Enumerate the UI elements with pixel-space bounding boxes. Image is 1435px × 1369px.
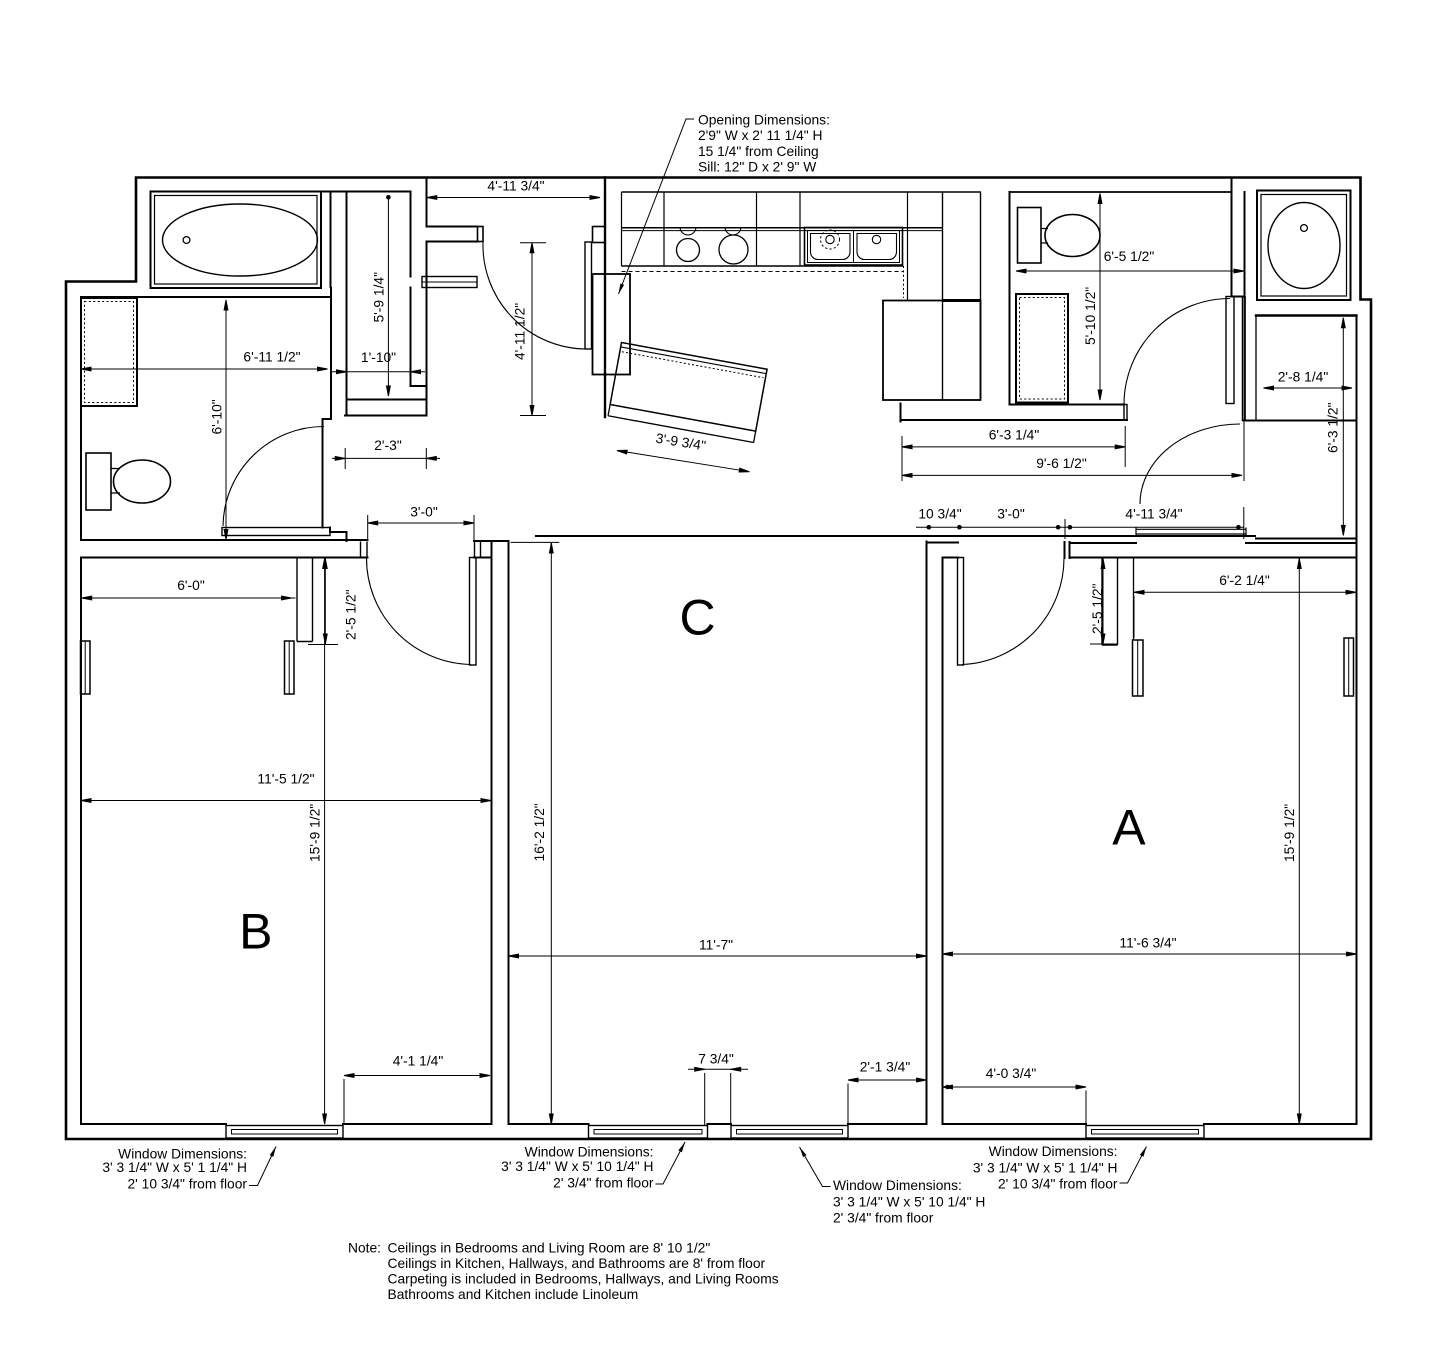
svg-text:Opening Dimensions:: Opening Dimensions:: [698, 113, 830, 128]
svg-text:Window Dimensions:: Window Dimensions:: [833, 1178, 962, 1193]
svg-text:2' 3/4" from floor: 2' 3/4" from floor: [553, 1176, 654, 1191]
svg-text:4'-0 3/4": 4'-0 3/4": [986, 1066, 1037, 1081]
svg-text:2'-8 1/4": 2'-8 1/4": [1278, 370, 1329, 385]
svg-text:2'-5 1/2": 2'-5 1/2": [1090, 583, 1105, 634]
svg-text:15'-9 1/2": 15'-9 1/2": [1282, 804, 1297, 862]
svg-text:Ceilings in Bedrooms and Livin: Ceilings in Bedrooms and Living Room are…: [388, 1241, 711, 1256]
svg-text:A: A: [1112, 800, 1146, 856]
svg-text:3' 3 1/4" W x 5' 1 1/4" H: 3' 3 1/4" W x 5' 1 1/4" H: [102, 1160, 247, 1175]
svg-text:2' 3/4" from floor: 2' 3/4" from floor: [833, 1211, 934, 1226]
svg-text:10 3/4": 10 3/4": [918, 507, 961, 522]
svg-text:2' 10 3/4" from floor: 2' 10 3/4" from floor: [998, 1177, 1118, 1192]
svg-text:2'-3": 2'-3": [374, 438, 402, 453]
svg-text:5'-10 1/2": 5'-10 1/2": [1083, 287, 1098, 345]
svg-text:Carpeting is included in Bedro: Carpeting is included in Bedrooms, Hallw…: [388, 1272, 779, 1287]
svg-text:2'9" W x 2' 11 1/4" H: 2'9" W x 2' 11 1/4" H: [698, 128, 822, 143]
svg-text:5'-9 1/4": 5'-9 1/4": [372, 272, 387, 323]
svg-text:B: B: [239, 904, 272, 960]
svg-text:4'-11 3/4": 4'-11 3/4": [1125, 507, 1182, 522]
svg-text:6'-2 1/4": 6'-2 1/4": [1219, 573, 1270, 588]
svg-text:3' 3 1/4" W x 5' 10 1/4" H: 3' 3 1/4" W x 5' 10 1/4" H: [833, 1195, 985, 1210]
svg-text:11'-6 3/4": 11'-6 3/4": [1119, 936, 1176, 951]
svg-text:6'-10": 6'-10": [210, 399, 225, 434]
svg-text:3' 3 1/4" W x 5' 10 1/4" H: 3' 3 1/4" W x 5' 10 1/4" H: [501, 1159, 653, 1174]
svg-text:9'-6 1/2": 9'-6 1/2": [1036, 456, 1087, 471]
svg-text:C: C: [680, 590, 716, 646]
svg-text:15'-9 1/2": 15'-9 1/2": [307, 804, 322, 862]
svg-text:4'-1 1/4": 4'-1 1/4": [393, 1054, 444, 1069]
svg-text:Window Dimensions:: Window Dimensions:: [989, 1144, 1118, 1159]
svg-text:Ceilings in Kitchen, Hallways,: Ceilings in Kitchen, Hallways, and Bathr…: [388, 1256, 766, 1271]
svg-text:3'-0": 3'-0": [410, 505, 438, 520]
svg-text:Sill: 12" D x 2' 9" W: Sill: 12" D x 2' 9" W: [698, 160, 816, 175]
svg-text:11'-5 1/2": 11'-5 1/2": [257, 772, 314, 787]
svg-text:16'-2 1/2": 16'-2 1/2": [532, 803, 547, 861]
svg-text:11'-7": 11'-7": [699, 938, 733, 953]
svg-text:7 3/4": 7 3/4": [698, 1052, 734, 1067]
svg-text:2'-5 1/2": 2'-5 1/2": [344, 589, 359, 640]
svg-text:6'-11 1/2": 6'-11 1/2": [243, 350, 300, 365]
svg-text:6'-0": 6'-0": [177, 578, 205, 593]
svg-text:Note:: Note:: [348, 1241, 381, 1256]
svg-text:15 1/4" from Ceiling: 15 1/4" from Ceiling: [698, 144, 819, 159]
svg-text:3'-0": 3'-0": [997, 507, 1025, 522]
svg-text:2'-1 3/4": 2'-1 3/4": [860, 1060, 911, 1075]
svg-text:6'-3 1/2": 6'-3 1/2": [1326, 402, 1341, 453]
svg-text:6'-3 1/4": 6'-3 1/4": [989, 428, 1040, 443]
svg-text:2' 10 3/4" from floor: 2' 10 3/4" from floor: [128, 1177, 248, 1192]
svg-text:4'-11 1/2": 4'-11 1/2": [513, 303, 528, 360]
svg-text:4'-11 3/4": 4'-11 3/4": [487, 179, 544, 194]
svg-text:Window Dimensions:: Window Dimensions:: [525, 1145, 654, 1160]
svg-text:Bathrooms and Kitchen include: Bathrooms and Kitchen include Linoleum: [388, 1287, 639, 1302]
svg-text:3' 3 1/4" W x 5' 1 1/4" H: 3' 3 1/4" W x 5' 1 1/4" H: [973, 1161, 1118, 1176]
svg-text:6'-5 1/2": 6'-5 1/2": [1104, 249, 1155, 264]
svg-text:1'-10": 1'-10": [361, 350, 396, 365]
